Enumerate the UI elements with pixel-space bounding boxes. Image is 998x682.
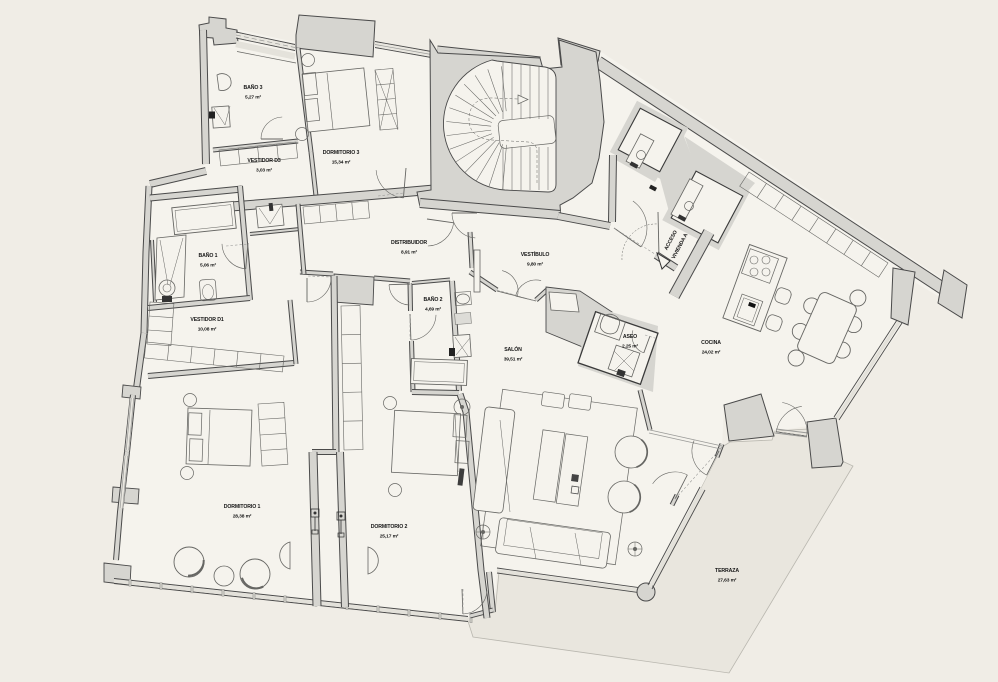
svg-text:VESTÍBULO: VESTÍBULO bbox=[521, 250, 550, 258]
svg-text:DORMITORIO 3: DORMITORIO 3 bbox=[323, 150, 360, 156]
svg-text:TERRAZA: TERRAZA bbox=[715, 568, 739, 574]
svg-text:BAÑO 2: BAÑO 2 bbox=[424, 296, 443, 303]
svg-text:2.25 m²: 2.25 m² bbox=[622, 344, 639, 350]
svg-text:3,03 m²: 3,03 m² bbox=[256, 168, 273, 174]
svg-text:DORMITORIO 2: DORMITORIO 2 bbox=[371, 524, 408, 530]
svg-text:BAÑO 3: BAÑO 3 bbox=[244, 84, 263, 91]
svg-text:15,34 m²: 15,34 m² bbox=[332, 160, 351, 166]
svg-text:DORMITORIO 1: DORMITORIO 1 bbox=[224, 504, 261, 510]
svg-text:COCINA: COCINA bbox=[701, 340, 721, 346]
svg-text:5,06 m²: 5,06 m² bbox=[200, 263, 217, 269]
svg-text:27,63 m²: 27,63 m² bbox=[718, 578, 737, 584]
svg-text:DISTRIBUIDOR: DISTRIBUIDOR bbox=[391, 240, 427, 246]
svg-text:VESTIDOR D1: VESTIDOR D1 bbox=[190, 317, 224, 323]
svg-text:5,27 m²: 5,27 m² bbox=[245, 95, 262, 101]
svg-text:28,38 m²: 28,38 m² bbox=[233, 514, 252, 520]
svg-text:39,51 m²: 39,51 m² bbox=[504, 357, 523, 363]
svg-text:BAÑO 1: BAÑO 1 bbox=[199, 252, 218, 259]
svg-text:SALÓN: SALÓN bbox=[504, 345, 522, 353]
svg-text:VESTIDOR D3: VESTIDOR D3 bbox=[247, 158, 281, 164]
svg-text:ASEO: ASEO bbox=[623, 334, 637, 340]
svg-text:10,08 m²: 10,08 m² bbox=[198, 327, 217, 333]
svg-text:9,80 m²: 9,80 m² bbox=[527, 262, 544, 268]
svg-text:4,69 m²: 4,69 m² bbox=[425, 307, 442, 313]
svg-text:24,02 m²: 24,02 m² bbox=[702, 350, 721, 356]
svg-text:25,17 m²: 25,17 m² bbox=[380, 534, 399, 540]
svg-text:8,91 m²: 8,91 m² bbox=[401, 250, 418, 256]
